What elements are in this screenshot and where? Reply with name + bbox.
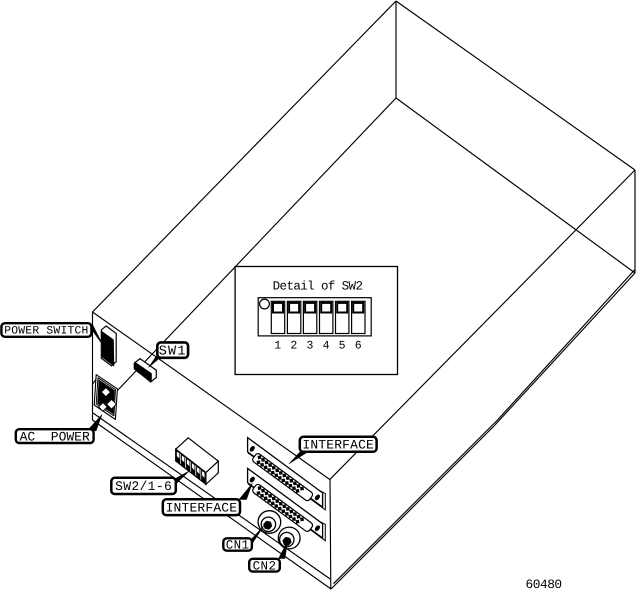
- svg-text:AC POWER: AC POWER: [20, 429, 90, 444]
- svg-text:POWER SWITCH: POWER SWITCH: [4, 326, 88, 338]
- svg-text:INTERFACE: INTERFACE: [302, 438, 374, 453]
- svg-text:60480: 60480: [526, 577, 562, 592]
- svg-text:SW1: SW1: [159, 345, 187, 360]
- svg-text:INTERFACE: INTERFACE: [166, 501, 238, 516]
- svg-text:123456: 123456: [274, 339, 371, 352]
- svg-text:CN2: CN2: [253, 559, 277, 573]
- svg-text:CN1: CN1: [226, 539, 250, 553]
- svg-text:Detail of SW2: Detail of SW2: [273, 280, 363, 294]
- svg-text:SW2/1-6: SW2/1-6: [115, 479, 172, 494]
